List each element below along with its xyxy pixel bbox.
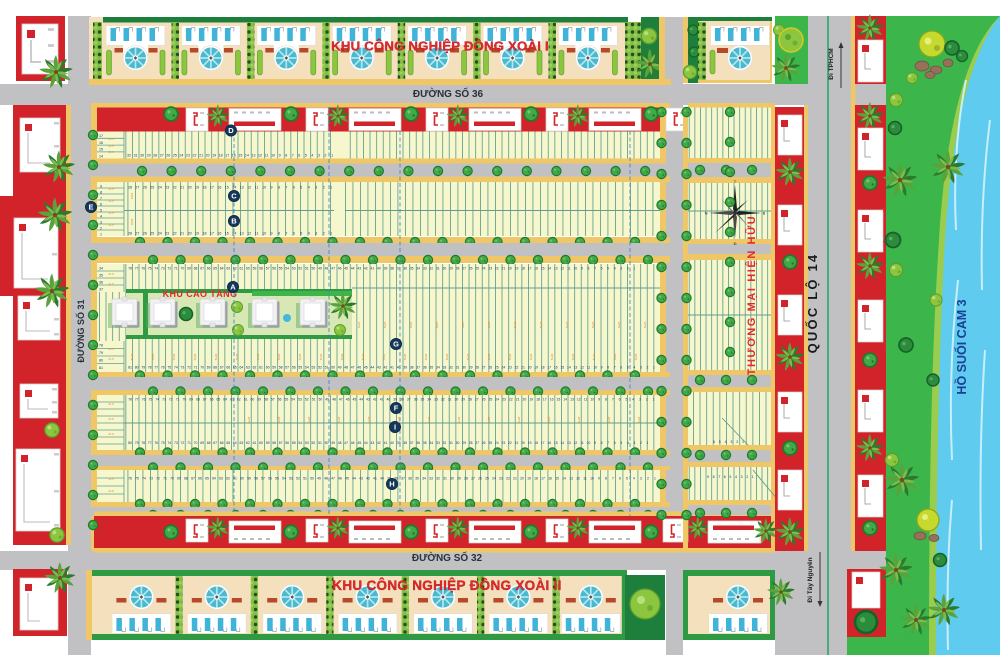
- svg-text:THƯƠNG MẠI HIỆN HỮU: THƯƠNG MẠI HIỆN HỮU: [745, 215, 758, 376]
- svg-text:27: 27: [135, 232, 139, 236]
- svg-text:63: 63: [240, 441, 244, 445]
- svg-text:6: 6: [620, 366, 622, 370]
- svg-text:21.5: 21.5: [108, 402, 114, 406]
- svg-text:42: 42: [384, 366, 388, 370]
- svg-text:29: 29: [461, 398, 465, 402]
- svg-text:7: 7: [612, 398, 614, 402]
- svg-text:63: 63: [246, 366, 250, 370]
- svg-text:38: 38: [400, 398, 404, 402]
- svg-text:QUỐC LỘ 14: QUỐC LỘ 14: [805, 253, 820, 354]
- svg-text:79: 79: [135, 441, 139, 445]
- svg-text:62: 62: [253, 366, 257, 370]
- svg-text:28: 28: [128, 232, 132, 236]
- svg-text:39: 39: [403, 366, 407, 370]
- svg-text:2: 2: [325, 154, 327, 158]
- svg-text:27: 27: [475, 398, 479, 402]
- svg-text:79: 79: [99, 351, 103, 355]
- svg-text:30: 30: [140, 154, 144, 158]
- svg-text:6: 6: [614, 441, 616, 445]
- svg-text:10: 10: [587, 441, 591, 445]
- svg-text:60: 60: [259, 441, 263, 445]
- svg-text:36: 36: [416, 441, 420, 445]
- svg-text:9: 9: [707, 475, 709, 479]
- svg-text:31: 31: [449, 441, 453, 445]
- svg-text:80: 80: [128, 441, 132, 445]
- svg-text:13: 13: [240, 232, 244, 236]
- svg-text:69: 69: [187, 267, 191, 271]
- svg-text:31: 31: [134, 154, 138, 158]
- svg-text:22: 22: [193, 154, 197, 158]
- svg-text:8: 8: [278, 186, 280, 190]
- svg-text:3: 3: [315, 186, 317, 190]
- svg-text:18: 18: [521, 267, 525, 271]
- svg-text:9: 9: [581, 267, 583, 271]
- svg-text:74: 74: [167, 441, 171, 445]
- svg-text:12: 12: [247, 232, 251, 236]
- svg-text:20: 20: [521, 441, 525, 445]
- svg-text:5: 5: [626, 477, 628, 481]
- svg-text:9: 9: [594, 441, 596, 445]
- svg-text:25: 25: [495, 366, 499, 370]
- svg-text:31: 31: [456, 366, 460, 370]
- svg-text:8: 8: [100, 191, 102, 195]
- svg-text:44: 44: [371, 366, 375, 370]
- svg-text:5x28: 5x28: [427, 416, 431, 423]
- svg-text:69: 69: [207, 366, 211, 370]
- svg-text:37: 37: [99, 288, 103, 292]
- svg-text:14: 14: [547, 267, 551, 271]
- svg-text:63: 63: [230, 398, 234, 402]
- svg-text:5x26: 5x26: [617, 321, 621, 328]
- svg-text:6: 6: [293, 232, 295, 236]
- svg-text:21.5: 21.5: [108, 187, 114, 191]
- svg-text:10: 10: [271, 154, 275, 158]
- svg-text:61: 61: [244, 398, 248, 402]
- svg-text:5x30: 5x30: [361, 353, 365, 360]
- svg-text:15: 15: [99, 148, 103, 152]
- svg-text:72: 72: [167, 267, 171, 271]
- svg-text:47: 47: [351, 366, 355, 370]
- svg-text:8: 8: [588, 267, 590, 271]
- svg-text:F: F: [394, 404, 399, 413]
- svg-text:66: 66: [207, 267, 211, 271]
- svg-text:58: 58: [272, 441, 276, 445]
- svg-text:58: 58: [279, 366, 283, 370]
- svg-text:5x30: 5x30: [256, 353, 260, 360]
- svg-text:17: 17: [528, 267, 532, 271]
- svg-text:23: 23: [502, 441, 506, 445]
- svg-text:76: 76: [128, 477, 132, 481]
- svg-text:68: 68: [213, 366, 217, 370]
- svg-text:1: 1: [330, 232, 332, 236]
- svg-text:3: 3: [633, 441, 635, 445]
- svg-text:72: 72: [181, 441, 185, 445]
- svg-text:48: 48: [344, 366, 348, 370]
- svg-text:27: 27: [160, 154, 164, 158]
- svg-text:41: 41: [371, 267, 375, 271]
- svg-text:20: 20: [520, 477, 524, 481]
- svg-text:18: 18: [541, 366, 545, 370]
- svg-text:68: 68: [194, 267, 198, 271]
- svg-text:75: 75: [149, 398, 153, 402]
- svg-text:5x30: 5x30: [298, 353, 302, 360]
- svg-text:16: 16: [548, 477, 552, 481]
- svg-text:5x26: 5x26: [409, 321, 413, 328]
- svg-text:3: 3: [640, 366, 642, 370]
- svg-text:53: 53: [292, 267, 296, 271]
- svg-text:15: 15: [554, 441, 558, 445]
- svg-text:62: 62: [233, 267, 237, 271]
- svg-text:46: 46: [357, 366, 361, 370]
- svg-text:Đi TPHCM: Đi TPHCM: [828, 48, 835, 79]
- svg-text:31: 31: [443, 477, 447, 481]
- svg-text:51: 51: [312, 398, 316, 402]
- svg-text:19: 19: [515, 267, 519, 271]
- svg-text:76: 76: [154, 441, 158, 445]
- svg-text:7: 7: [292, 154, 294, 158]
- svg-text:70: 70: [200, 366, 204, 370]
- svg-text:80: 80: [99, 359, 103, 363]
- svg-text:46: 46: [338, 267, 342, 271]
- svg-text:5x30: 5x30: [340, 353, 344, 360]
- svg-text:21: 21: [516, 398, 520, 402]
- svg-text:34: 34: [436, 366, 440, 370]
- svg-text:23: 23: [508, 366, 512, 370]
- svg-text:24: 24: [495, 398, 499, 402]
- svg-text:53: 53: [289, 477, 293, 481]
- svg-text:4: 4: [725, 440, 727, 444]
- svg-text:9: 9: [100, 185, 102, 189]
- svg-text:59: 59: [247, 477, 251, 481]
- svg-text:6: 6: [293, 186, 295, 190]
- svg-text:36: 36: [403, 267, 407, 271]
- svg-text:73: 73: [161, 267, 165, 271]
- svg-text:15: 15: [555, 477, 559, 481]
- svg-text:46: 46: [346, 398, 350, 402]
- svg-text:76: 76: [142, 398, 146, 402]
- svg-text:21.5: 21.5: [108, 223, 114, 227]
- svg-text:73: 73: [174, 441, 178, 445]
- svg-text:23: 23: [165, 232, 169, 236]
- svg-text:3: 3: [318, 154, 320, 158]
- svg-text:5x30: 5x30: [235, 353, 239, 360]
- svg-text:13: 13: [569, 477, 573, 481]
- svg-text:5x28: 5x28: [307, 416, 311, 423]
- svg-text:25: 25: [150, 232, 154, 236]
- svg-text:24: 24: [492, 477, 496, 481]
- svg-text:14: 14: [245, 154, 249, 158]
- svg-text:62: 62: [237, 398, 241, 402]
- svg-text:43: 43: [366, 398, 370, 402]
- svg-text:1: 1: [742, 440, 744, 444]
- svg-text:17: 17: [99, 134, 103, 138]
- svg-text:1: 1: [646, 441, 648, 445]
- svg-text:10: 10: [591, 398, 595, 402]
- svg-text:19: 19: [212, 154, 216, 158]
- svg-text:5x28: 5x28: [487, 416, 491, 423]
- svg-text:52: 52: [305, 398, 309, 402]
- svg-text:22: 22: [515, 366, 519, 370]
- svg-text:7: 7: [285, 186, 287, 190]
- svg-text:1004: 1004: [130, 192, 134, 199]
- svg-text:3: 3: [730, 440, 732, 444]
- svg-text:6: 6: [601, 267, 603, 271]
- svg-text:A: A: [230, 283, 236, 292]
- svg-text:30: 30: [456, 441, 460, 445]
- svg-text:52: 52: [318, 366, 322, 370]
- svg-text:80: 80: [135, 366, 139, 370]
- svg-text:55: 55: [279, 267, 283, 271]
- svg-text:40: 40: [387, 398, 391, 402]
- svg-text:72: 72: [169, 398, 173, 402]
- svg-text:21.5: 21.5: [108, 477, 114, 481]
- svg-text:72: 72: [187, 366, 191, 370]
- svg-text:45: 45: [344, 267, 348, 271]
- svg-text:64: 64: [233, 441, 237, 445]
- svg-text:21.5: 21.5: [108, 137, 114, 141]
- svg-text:20: 20: [206, 154, 210, 158]
- svg-text:57: 57: [271, 398, 275, 402]
- svg-text:26: 26: [482, 441, 486, 445]
- svg-text:54: 54: [282, 477, 286, 481]
- svg-text:21.5: 21.5: [108, 272, 114, 276]
- svg-text:54: 54: [298, 441, 302, 445]
- svg-text:47: 47: [331, 267, 335, 271]
- svg-text:58: 58: [259, 267, 263, 271]
- svg-text:35: 35: [429, 366, 433, 370]
- svg-text:67: 67: [200, 267, 204, 271]
- svg-text:37: 37: [416, 366, 420, 370]
- svg-text:9: 9: [271, 232, 273, 236]
- svg-text:9: 9: [271, 186, 273, 190]
- svg-text:59: 59: [253, 267, 257, 271]
- svg-text:27: 27: [135, 186, 139, 190]
- svg-text:10: 10: [574, 267, 578, 271]
- svg-text:5x28: 5x28: [397, 416, 401, 423]
- svg-text:5x26: 5x26: [383, 321, 387, 328]
- svg-text:32: 32: [443, 441, 447, 445]
- svg-text:26: 26: [488, 366, 492, 370]
- svg-text:6: 6: [619, 477, 621, 481]
- svg-text:9: 9: [601, 366, 603, 370]
- svg-text:24: 24: [179, 154, 183, 158]
- svg-text:62: 62: [246, 441, 250, 445]
- svg-text:16: 16: [550, 398, 554, 402]
- svg-text:5x26: 5x26: [643, 321, 647, 328]
- svg-text:11: 11: [580, 441, 584, 445]
- svg-text:17: 17: [543, 398, 547, 402]
- svg-text:22: 22: [173, 232, 177, 236]
- svg-text:5x28: 5x28: [607, 416, 611, 423]
- svg-text:5x30: 5x30: [466, 353, 470, 360]
- svg-text:12: 12: [580, 366, 584, 370]
- svg-text:26: 26: [482, 398, 486, 402]
- svg-text:11: 11: [583, 477, 587, 481]
- svg-text:61: 61: [240, 267, 244, 271]
- svg-text:29: 29: [147, 154, 151, 158]
- svg-text:55: 55: [285, 398, 289, 402]
- svg-text:24: 24: [495, 441, 499, 445]
- svg-text:67: 67: [203, 398, 207, 402]
- svg-text:9: 9: [598, 477, 600, 481]
- svg-text:56: 56: [278, 398, 282, 402]
- svg-text:11: 11: [265, 154, 269, 158]
- svg-text:81: 81: [99, 366, 103, 370]
- svg-text:15: 15: [225, 232, 229, 236]
- svg-text:20: 20: [523, 398, 527, 402]
- svg-text:76: 76: [141, 267, 145, 271]
- svg-text:2: 2: [736, 440, 738, 444]
- svg-text:49: 49: [318, 267, 322, 271]
- svg-text:5x28: 5x28: [517, 416, 521, 423]
- svg-text:5x28: 5x28: [277, 416, 281, 423]
- svg-text:1: 1: [330, 186, 332, 190]
- svg-text:47: 47: [344, 441, 348, 445]
- svg-text:26: 26: [469, 267, 473, 271]
- svg-text:52: 52: [298, 267, 302, 271]
- svg-text:77: 77: [135, 398, 139, 402]
- svg-text:15: 15: [557, 398, 561, 402]
- svg-text:9: 9: [279, 154, 281, 158]
- svg-text:33: 33: [423, 267, 427, 271]
- svg-text:13: 13: [574, 366, 578, 370]
- svg-text:5x30: 5x30: [172, 353, 176, 360]
- svg-text:1: 1: [653, 366, 655, 370]
- svg-text:25: 25: [150, 186, 154, 190]
- svg-text:32: 32: [429, 267, 433, 271]
- svg-text:21: 21: [521, 366, 525, 370]
- svg-text:11: 11: [255, 186, 259, 190]
- svg-text:5: 5: [100, 209, 102, 213]
- svg-text:60: 60: [240, 477, 244, 481]
- svg-text:21.5: 21.5: [108, 357, 114, 361]
- svg-text:5x30: 5x30: [424, 353, 428, 360]
- svg-text:D: D: [228, 126, 234, 135]
- svg-text:34: 34: [99, 267, 103, 271]
- svg-text:70: 70: [194, 441, 198, 445]
- svg-text:64: 64: [223, 398, 227, 402]
- svg-text:50: 50: [319, 398, 323, 402]
- svg-text:26: 26: [143, 186, 147, 190]
- svg-text:10: 10: [593, 366, 597, 370]
- svg-text:7: 7: [100, 197, 102, 201]
- svg-text:21: 21: [502, 267, 506, 271]
- svg-text:11: 11: [587, 366, 591, 370]
- svg-text:67: 67: [213, 441, 217, 445]
- svg-text:79: 79: [141, 366, 145, 370]
- svg-text:61: 61: [259, 366, 263, 370]
- svg-text:24: 24: [482, 267, 486, 271]
- svg-text:8: 8: [278, 232, 280, 236]
- svg-text:5x28: 5x28: [337, 416, 341, 423]
- svg-text:41: 41: [373, 477, 377, 481]
- svg-text:70: 70: [170, 477, 174, 481]
- svg-text:64: 64: [220, 267, 224, 271]
- svg-text:73: 73: [162, 398, 166, 402]
- svg-text:42: 42: [366, 477, 370, 481]
- svg-text:13: 13: [554, 267, 558, 271]
- svg-text:40: 40: [377, 267, 381, 271]
- svg-text:70: 70: [181, 267, 185, 271]
- svg-text:5x30: 5x30: [571, 353, 575, 360]
- svg-text:5x26: 5x26: [513, 321, 517, 328]
- svg-text:55: 55: [275, 477, 279, 481]
- svg-text:36: 36: [414, 398, 418, 402]
- svg-text:4: 4: [311, 154, 313, 158]
- svg-text:5x30: 5x30: [193, 353, 197, 360]
- svg-text:5x26: 5x26: [435, 321, 439, 328]
- svg-text:29: 29: [449, 267, 453, 271]
- svg-text:38: 38: [403, 441, 407, 445]
- svg-text:24: 24: [158, 232, 162, 236]
- svg-text:20: 20: [508, 267, 512, 271]
- svg-text:35: 35: [410, 267, 414, 271]
- svg-text:5x26: 5x26: [461, 321, 465, 328]
- svg-text:4: 4: [632, 398, 634, 402]
- svg-text:21.5: 21.5: [108, 347, 114, 351]
- svg-text:18: 18: [534, 441, 538, 445]
- svg-text:5x28: 5x28: [367, 416, 371, 423]
- svg-text:66: 66: [198, 477, 202, 481]
- svg-text:75: 75: [161, 441, 165, 445]
- svg-text:50: 50: [325, 441, 329, 445]
- svg-text:21.5: 21.5: [108, 199, 114, 203]
- svg-text:78: 78: [148, 366, 152, 370]
- svg-text:3: 3: [100, 221, 102, 225]
- svg-text:5: 5: [300, 186, 302, 190]
- svg-text:27: 27: [475, 441, 479, 445]
- svg-text:21.5: 21.5: [108, 211, 114, 215]
- svg-text:25: 25: [173, 154, 177, 158]
- svg-text:19: 19: [195, 186, 199, 190]
- svg-text:29: 29: [457, 477, 461, 481]
- svg-text:23: 23: [165, 186, 169, 190]
- svg-text:5x28: 5x28: [577, 416, 581, 423]
- svg-text:3: 3: [640, 477, 642, 481]
- svg-text:5x30: 5x30: [487, 353, 491, 360]
- svg-text:38: 38: [410, 366, 414, 370]
- svg-text:14: 14: [99, 154, 103, 158]
- svg-text:25: 25: [488, 441, 492, 445]
- svg-text:40: 40: [390, 441, 394, 445]
- svg-text:2: 2: [100, 227, 102, 231]
- svg-text:17: 17: [547, 366, 551, 370]
- svg-text:36: 36: [423, 366, 427, 370]
- svg-text:48: 48: [332, 398, 336, 402]
- svg-text:24: 24: [158, 186, 162, 190]
- svg-text:60: 60: [266, 366, 270, 370]
- svg-text:17: 17: [541, 477, 545, 481]
- svg-text:25: 25: [475, 267, 479, 271]
- svg-text:78: 78: [99, 344, 103, 348]
- svg-text:18: 18: [536, 398, 540, 402]
- svg-text:5: 5: [300, 232, 302, 236]
- svg-text:E: E: [88, 203, 93, 212]
- svg-text:53: 53: [305, 441, 309, 445]
- svg-text:28: 28: [469, 441, 473, 445]
- svg-text:50: 50: [331, 366, 335, 370]
- svg-text:26: 26: [143, 232, 147, 236]
- svg-text:77: 77: [154, 366, 158, 370]
- svg-text:52: 52: [296, 477, 300, 481]
- svg-text:12: 12: [258, 154, 262, 158]
- svg-text:6: 6: [100, 203, 102, 207]
- svg-text:13: 13: [570, 398, 574, 402]
- svg-text:35: 35: [423, 441, 427, 445]
- svg-text:1004: 1004: [130, 218, 134, 225]
- svg-text:5x30: 5x30: [445, 353, 449, 360]
- svg-text:15: 15: [238, 154, 242, 158]
